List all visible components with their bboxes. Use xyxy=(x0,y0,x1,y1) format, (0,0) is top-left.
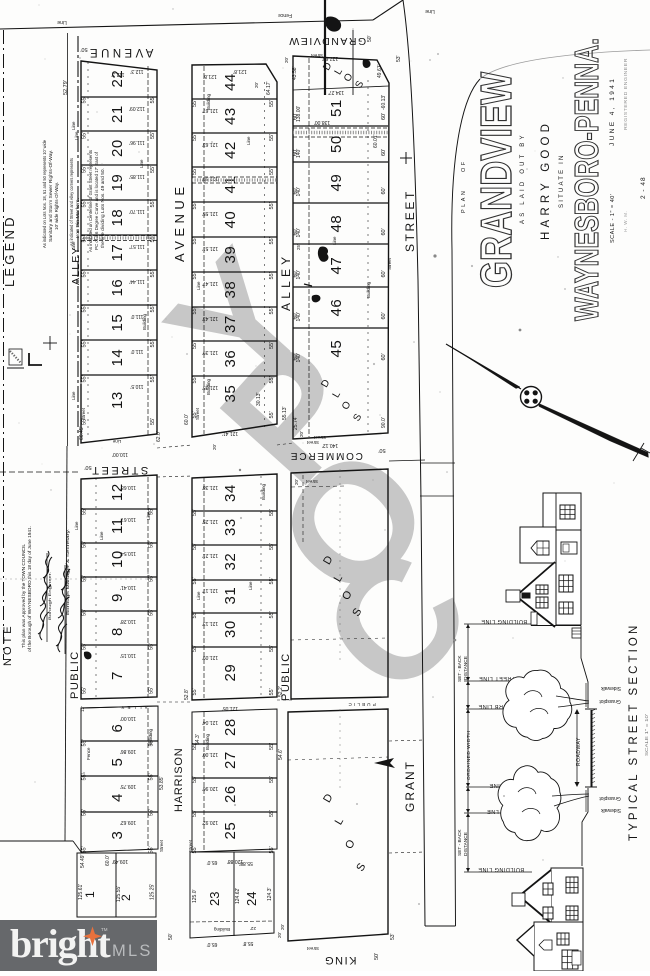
svg-text:55': 55' xyxy=(150,235,156,242)
svg-text:55': 55' xyxy=(82,739,88,746)
svg-text:49.61': 49.61' xyxy=(377,64,383,78)
svg-text:55': 55' xyxy=(269,168,275,175)
svg-text:55': 55' xyxy=(192,342,198,349)
svg-text:PLAN: PLAN xyxy=(461,189,467,213)
svg-text:121.55': 121.55' xyxy=(202,210,218,216)
svg-text:55.13': 55.13' xyxy=(282,406,288,420)
svg-text:60': 60' xyxy=(293,270,299,277)
svg-text:49: 49 xyxy=(328,174,345,192)
svg-text:STREET: STREET xyxy=(403,189,417,252)
svg-text:65.0': 65.0' xyxy=(207,941,218,947)
svg-text:10' wide Rights-Of-Way.: 10' wide Rights-Of-Way. xyxy=(54,182,59,230)
svg-text:Street: Street xyxy=(81,407,86,420)
svg-text:55': 55' xyxy=(192,168,198,175)
svg-text:60': 60' xyxy=(293,228,299,235)
svg-text:55': 55' xyxy=(149,575,155,582)
svg-text:60': 60' xyxy=(293,353,299,360)
svg-text:Fence: Fence xyxy=(86,747,91,760)
svg-text:121.51': 121.51' xyxy=(202,245,218,251)
svg-text:31: 31 xyxy=(222,587,239,605)
svg-text:36: 36 xyxy=(222,350,239,368)
svg-text:55': 55' xyxy=(192,611,198,618)
svg-text:43: 43 xyxy=(222,107,239,125)
svg-text:60': 60' xyxy=(293,312,299,319)
svg-text:54.49': 54.49' xyxy=(80,854,86,868)
svg-text:28: 28 xyxy=(222,718,239,736)
svg-text:125.25': 125.25' xyxy=(150,884,156,900)
svg-text:55.88': 55.88' xyxy=(239,860,253,866)
svg-text:50': 50' xyxy=(80,46,87,52)
svg-text:121.09': 121.09' xyxy=(202,654,218,660)
svg-text:DISTANCE: DISTANCE xyxy=(463,832,469,856)
svg-text:55': 55' xyxy=(82,773,88,780)
svg-text:55': 55' xyxy=(192,376,198,383)
svg-text:20: 20 xyxy=(109,139,126,157)
svg-text:27: 27 xyxy=(222,751,239,769)
svg-text:121.47': 121.47' xyxy=(202,280,218,286)
svg-text:55': 55' xyxy=(150,132,156,139)
svg-text:Line: Line xyxy=(139,159,144,168)
svg-text:Borough Manager & Secret: Borough Manager & Secretary. xyxy=(66,529,70,615)
svg-text:Street: Street xyxy=(188,839,193,852)
svg-text:55': 55' xyxy=(150,96,156,103)
svg-text:53': 53' xyxy=(396,55,402,62)
svg-text:Building: Building xyxy=(148,728,153,745)
svg-text:124.3': 124.3' xyxy=(267,887,273,901)
svg-text:Line: Line xyxy=(332,236,337,245)
svg-text:60': 60' xyxy=(293,187,299,194)
svg-text:55': 55' xyxy=(149,609,155,616)
svg-text:Street: Street xyxy=(195,407,200,420)
svg-text:1: 1 xyxy=(83,891,97,898)
svg-text:38: 38 xyxy=(222,281,239,299)
svg-text:110.68': 110.68' xyxy=(120,484,136,490)
svg-text:GRANT: GRANT xyxy=(403,760,417,812)
svg-text:124.62': 124.62' xyxy=(235,888,241,904)
svg-text:112.3': 112.3' xyxy=(130,68,143,74)
svg-text:Building: Building xyxy=(205,733,210,750)
svg-text:55': 55' xyxy=(82,375,88,382)
svg-text:55': 55' xyxy=(150,270,156,277)
svg-text:Street: Street xyxy=(306,946,319,951)
svg-text:110.41': 110.41' xyxy=(120,584,136,590)
svg-text:138.00': 138.00' xyxy=(314,119,330,125)
svg-text:55': 55' xyxy=(192,272,198,279)
svg-text:55': 55' xyxy=(269,611,275,618)
svg-text:111.70': 111.70' xyxy=(129,208,145,214)
svg-text:42: 42 xyxy=(222,141,239,159)
svg-text:44: 44 xyxy=(222,73,239,91)
svg-text:55': 55' xyxy=(269,307,275,314)
svg-text:39: 39 xyxy=(222,246,239,264)
svg-text:Sidewalk: Sidewalk xyxy=(600,685,621,691)
svg-text:48: 48 xyxy=(328,215,345,233)
svg-text:Building: Building xyxy=(366,281,371,298)
svg-text:55': 55' xyxy=(82,687,88,694)
svg-text:15: 15 xyxy=(109,314,126,332)
svg-text:55': 55' xyxy=(82,96,88,103)
svg-text:55': 55' xyxy=(149,846,155,853)
svg-text:64.17': 64.17' xyxy=(266,81,272,95)
svg-text:53': 53' xyxy=(390,933,396,940)
svg-text:55': 55' xyxy=(269,577,275,584)
svg-text:51: 51 xyxy=(328,99,345,117)
svg-text:Line: Line xyxy=(425,8,435,14)
svg-text:50': 50' xyxy=(374,953,380,960)
svg-text:24: 24 xyxy=(244,892,259,906)
svg-text:HARRISON: HARRISON xyxy=(173,748,185,812)
svg-text:50': 50' xyxy=(168,933,174,940)
svg-text:55': 55' xyxy=(269,202,275,209)
svg-text:121.25': 121.25' xyxy=(202,518,218,524)
svg-text:55': 55' xyxy=(192,100,198,107)
svg-text:109.86': 109.86' xyxy=(120,748,136,754)
svg-text:55': 55' xyxy=(269,543,275,550)
svg-text:125.55': 125.55' xyxy=(116,886,122,902)
svg-text:40: 40 xyxy=(222,211,239,229)
svg-text:As indicated on Centerline: As indicated on Centerline of Grant Stre… xyxy=(88,150,93,252)
svg-text:55': 55' xyxy=(192,645,198,652)
svg-text:PUBLIC: PUBLIC xyxy=(280,652,292,701)
svg-text:17: 17 xyxy=(109,244,126,262)
svg-text:55': 55' xyxy=(82,508,88,515)
svg-text:55': 55' xyxy=(269,688,275,695)
svg-text:19: 19 xyxy=(109,174,126,192)
svg-text:REGISTERED ENGINEER: REGISTERED ENGINEER xyxy=(623,58,628,130)
svg-text:TYPICAL STREET SECTION: TYPICAL STREET SECTION xyxy=(628,623,640,841)
svg-text:bright: bright xyxy=(10,921,111,966)
svg-text:WAYNESBORO-PENNA.: WAYNESBORO-PENNA. xyxy=(568,38,605,321)
svg-text:55': 55' xyxy=(82,200,88,207)
svg-text:Line: Line xyxy=(196,281,201,290)
svg-text:127.63': 127.63' xyxy=(322,55,338,61)
svg-text:55': 55' xyxy=(192,543,198,550)
svg-text:125.61': 125.61' xyxy=(78,884,84,900)
svg-text:55': 55' xyxy=(192,776,198,783)
svg-text:110.54': 110.54' xyxy=(120,550,136,556)
svg-text:ALLEY: ALLEY xyxy=(279,253,293,311)
svg-text:PUBLIC: PUBLIC xyxy=(69,650,81,699)
svg-text:109.49': 109.49' xyxy=(112,858,128,864)
svg-text:111.85': 111.85' xyxy=(129,173,145,179)
svg-text:Building: Building xyxy=(142,313,147,330)
svg-text:60': 60' xyxy=(381,187,387,194)
svg-text:110.28': 110.28' xyxy=(120,618,136,624)
svg-text:50: 50 xyxy=(328,135,345,153)
svg-text:55': 55' xyxy=(82,270,88,277)
svg-text:7: 7 xyxy=(109,671,126,680)
svg-text:Street: Street xyxy=(305,479,318,484)
svg-text:of the Borough of WAYNESBO: of the Borough of WAYNESBORO this 18 day… xyxy=(27,526,32,652)
svg-text:111.44': 111.44' xyxy=(129,278,145,284)
svg-text:47: 47 xyxy=(328,257,345,275)
svg-text:20': 20' xyxy=(254,82,259,88)
svg-text:55': 55' xyxy=(269,376,275,383)
svg-text:55': 55' xyxy=(82,166,88,173)
svg-text:Iron Pin Markers.: Iron Pin Markers. xyxy=(75,198,80,238)
svg-text:121.8': 121.8' xyxy=(233,68,247,74)
svg-text:SET - BACK: SET - BACK xyxy=(457,655,463,682)
svg-text:SET - BACK: SET - BACK xyxy=(457,829,463,856)
svg-text:121.21': 121.21' xyxy=(202,552,218,558)
svg-text:55': 55' xyxy=(269,237,275,244)
svg-text:55': 55' xyxy=(269,810,275,817)
svg-text:55': 55' xyxy=(150,166,156,173)
svg-text:AS LAID OUT BY: AS LAID OUT BY xyxy=(520,132,526,224)
svg-text:50': 50' xyxy=(378,447,385,453)
svg-text:20': 20' xyxy=(299,431,304,437)
svg-text:121.8': 121.8' xyxy=(203,73,217,79)
svg-text:Street: Street xyxy=(387,257,392,270)
svg-text:110.00': 110.00' xyxy=(120,715,136,721)
svg-text:55': 55' xyxy=(82,305,88,312)
svg-text:Line: Line xyxy=(248,581,253,590)
svg-text:121.41': 121.41' xyxy=(222,430,238,436)
svg-text:PUBLIC: PUBLIC xyxy=(346,702,375,707)
svg-text:TM: TM xyxy=(101,927,108,932)
svg-text:60': 60' xyxy=(381,270,387,277)
svg-text:55': 55' xyxy=(269,134,275,141)
svg-text:55': 55' xyxy=(82,541,88,548)
svg-text:60': 60' xyxy=(381,113,387,120)
svg-text:ALLEY: ALLEY xyxy=(70,246,82,285)
svg-text:This plan was Approved by: This plan was Approved by the TOWN COUNC… xyxy=(21,543,26,648)
svg-text:55': 55' xyxy=(269,645,275,652)
svg-text:52.79': 52.79' xyxy=(63,80,69,95)
svg-text:60': 60' xyxy=(381,228,387,235)
svg-text:20': 20' xyxy=(280,924,285,930)
svg-text:KING: KING xyxy=(324,954,357,966)
svg-text:LEGEND: LEGEND xyxy=(2,214,17,287)
svg-text:16: 16 xyxy=(109,279,126,297)
svg-text:26: 26 xyxy=(222,785,239,803)
svg-text:Line: Line xyxy=(74,131,79,140)
svg-text:121.13': 121.13' xyxy=(202,620,218,626)
svg-text:Building: Building xyxy=(213,927,230,932)
svg-text:Building: Building xyxy=(206,378,211,395)
svg-text:AVENUE: AVENUE xyxy=(172,183,187,263)
svg-text:111.96': 111.96' xyxy=(129,139,145,145)
svg-text:55': 55' xyxy=(150,340,156,347)
svg-text:110.00': 110.00' xyxy=(112,451,128,457)
svg-text:20': 20' xyxy=(212,444,217,450)
svg-text:8: 8 xyxy=(109,627,126,636)
svg-text:55': 55' xyxy=(269,272,275,279)
svg-text:55': 55' xyxy=(192,810,198,817)
svg-text:GRANDVIEW: GRANDVIEW xyxy=(472,72,521,288)
svg-text:55': 55' xyxy=(149,541,155,548)
svg-text:110.15': 110.15' xyxy=(120,652,136,658)
svg-text:60': 60' xyxy=(293,149,299,156)
svg-text:111.0': 111.0' xyxy=(131,348,144,354)
svg-text:20': 20' xyxy=(294,479,299,485)
svg-text:55': 55' xyxy=(82,643,88,650)
svg-text:As indicated of Street and: As indicated of Street and Alley corners… xyxy=(69,158,74,246)
svg-text:Line: Line xyxy=(57,19,67,25)
svg-text:-60.13': -60.13' xyxy=(381,95,387,110)
svg-text:32: 32 xyxy=(222,553,239,571)
svg-text:55': 55' xyxy=(149,773,155,780)
svg-text:Sanitary and Storm Sewer R: Sanitary and Storm Sewer Rights-Of-Way. xyxy=(48,150,53,242)
svg-text:112.09': 112.09' xyxy=(129,105,145,111)
svg-text:121.38': 121.38' xyxy=(202,484,218,490)
svg-text:55': 55' xyxy=(269,100,275,107)
svg-text:55': 55' xyxy=(82,132,88,139)
svg-text:53.85': 53.85' xyxy=(159,776,165,790)
svg-text:Line: Line xyxy=(71,121,76,130)
svg-text:55': 55' xyxy=(192,509,198,516)
svg-text:Line: Line xyxy=(146,511,151,520)
svg-text:55': 55' xyxy=(82,846,88,853)
svg-text:60.0': 60.0' xyxy=(184,414,190,425)
svg-text:13: 13 xyxy=(109,391,126,409)
svg-text:55': 55' xyxy=(82,609,88,616)
svg-text:121.39': 121.39' xyxy=(202,349,218,355)
svg-text:55': 55' xyxy=(192,134,198,141)
svg-text:PC of a 6 Degree Curve a: PC of a 6 Degree Curve and is located 17… xyxy=(94,151,99,250)
svg-text:112.3': 112.3' xyxy=(111,71,124,77)
svg-text:22': 22' xyxy=(250,926,256,931)
svg-text:Sidewalk: Sidewalk xyxy=(600,807,621,813)
svg-text:110.67': 110.67' xyxy=(120,516,136,522)
svg-text:COMMERCE: COMMERCE xyxy=(289,450,363,461)
svg-text:Line: Line xyxy=(71,391,76,400)
svg-text:Line: Line xyxy=(196,591,201,600)
svg-text:109.75': 109.75' xyxy=(120,783,136,789)
svg-text:14: 14 xyxy=(109,349,126,367)
svg-text:ROADWAY: ROADWAY xyxy=(576,737,582,766)
svg-text:Building: Building xyxy=(261,483,266,500)
svg-text:121.63': 121.63' xyxy=(202,141,218,147)
svg-text:54.3': 54.3' xyxy=(195,734,201,745)
svg-text:SITUATE IN: SITUATE IN xyxy=(559,153,565,208)
svg-text:NOTE: NOTE xyxy=(2,623,14,666)
svg-text:55': 55' xyxy=(269,509,275,516)
svg-text:Line: Line xyxy=(112,439,121,444)
svg-text:18: 18 xyxy=(109,209,126,227)
svg-text:55': 55' xyxy=(192,577,198,584)
svg-text:55': 55' xyxy=(149,687,155,694)
svg-text:SCALE - 1" = 40': SCALE - 1" = 40' xyxy=(610,194,616,243)
svg-text:Grassplot: Grassplot xyxy=(599,795,621,801)
svg-text:4: 4 xyxy=(109,793,126,802)
svg-text:55': 55' xyxy=(192,202,198,209)
svg-text:A L L E Y: A L L E Y xyxy=(120,705,147,710)
svg-text:55': 55' xyxy=(269,342,275,349)
svg-text:54.6': 54.6' xyxy=(278,749,284,760)
svg-text:Line: Line xyxy=(99,531,104,540)
svg-text:9: 9 xyxy=(109,593,126,602)
svg-text:OF: OF xyxy=(461,159,467,172)
svg-text:Line: Line xyxy=(74,521,79,530)
svg-text:55': 55' xyxy=(149,643,155,650)
svg-text:AVENUE: AVENUE xyxy=(87,46,154,58)
svg-text:109.62': 109.62' xyxy=(120,819,136,825)
svg-text:46: 46 xyxy=(328,299,345,317)
svg-text:90.0': 90.0' xyxy=(381,417,387,428)
svg-text:Grassplot: Grassplot xyxy=(599,698,621,704)
svg-text:65.0': 65.0' xyxy=(207,859,218,865)
svg-text:25: 25 xyxy=(222,822,239,840)
svg-text:55': 55' xyxy=(192,307,198,314)
svg-text:66.45': 66.45' xyxy=(79,426,85,440)
svg-text:SCALE 1" = 10': SCALE 1" = 10' xyxy=(644,714,649,756)
svg-text:23: 23 xyxy=(207,892,222,906)
svg-text:50': 50' xyxy=(84,464,91,470)
svg-text:55': 55' xyxy=(150,375,156,382)
svg-text:33: 33 xyxy=(222,518,239,536)
svg-text:60': 60' xyxy=(381,312,387,319)
svg-text:MLS: MLS xyxy=(112,942,153,960)
svg-text:111.57': 111.57' xyxy=(129,243,145,249)
svg-text:STREET: STREET xyxy=(90,464,148,476)
svg-text:62.0': 62.0' xyxy=(156,431,162,442)
svg-text:20': 20' xyxy=(284,57,289,63)
svg-text:As indicated on Lots Nos.: As indicated on Lots Nos. 18, 51 and 50 … xyxy=(42,139,47,248)
svg-text:Borough Engineer.: Borough Engineer. xyxy=(48,572,52,620)
svg-text:Street: Street xyxy=(159,839,164,852)
svg-text:BUILDING LINE: BUILDING LINE xyxy=(478,866,524,872)
svg-text:H. W. M.: H. W. M. xyxy=(623,211,628,232)
svg-text:55': 55' xyxy=(192,237,198,244)
svg-text:Line: Line xyxy=(246,136,251,145)
svg-text:HARRY GOOD: HARRY GOOD xyxy=(540,120,552,240)
svg-text:2 - 48: 2 - 48 xyxy=(640,176,647,199)
svg-text:35: 35 xyxy=(222,385,239,403)
svg-text:25.74': 25.74' xyxy=(293,416,299,430)
svg-text:60.01': 60.01' xyxy=(373,134,379,148)
svg-text:121.43': 121.43' xyxy=(202,315,218,321)
svg-text:30: 30 xyxy=(222,620,239,638)
svg-text:37: 37 xyxy=(222,315,239,333)
svg-text:Street: Street xyxy=(313,435,326,440)
svg-text:21: 21 xyxy=(109,105,126,123)
svg-text:5: 5 xyxy=(109,758,126,767)
svg-text:60.0': 60.0' xyxy=(105,855,111,866)
svg-text:45: 45 xyxy=(328,340,345,358)
svg-text:ORDAINED WIDTH: ORDAINED WIDTH xyxy=(466,731,472,780)
svg-text:GRANDVIEW: GRANDVIEW xyxy=(288,35,366,47)
svg-text:34: 34 xyxy=(222,484,239,502)
svg-text:3: 3 xyxy=(109,831,126,840)
svg-text:25': 25' xyxy=(296,244,301,250)
svg-text:55': 55' xyxy=(82,340,88,347)
svg-text:60': 60' xyxy=(381,149,387,156)
svg-text:52.8': 52.8' xyxy=(184,689,190,700)
svg-text:20': 20' xyxy=(277,932,282,938)
svg-text:55': 55' xyxy=(150,418,156,425)
svg-text:43.58': 43.58' xyxy=(292,66,298,80)
svg-text:6: 6 xyxy=(109,724,126,733)
svg-text:50': 50' xyxy=(367,35,373,42)
svg-text:125.0': 125.0' xyxy=(192,889,198,903)
svg-text:140.12': 140.12' xyxy=(322,442,338,448)
svg-text:55': 55' xyxy=(192,688,198,695)
svg-text:110.5': 110.5' xyxy=(130,383,143,389)
svg-text:55': 55' xyxy=(82,575,88,582)
svg-text:Building: Building xyxy=(206,93,211,110)
svg-text:55': 55' xyxy=(150,305,156,312)
svg-text:121.17': 121.17' xyxy=(202,587,218,593)
svg-text:DISTANCE: DISTANCE xyxy=(463,656,469,680)
svg-text:55': 55' xyxy=(269,776,275,783)
svg-text:55': 55' xyxy=(269,411,275,418)
svg-text:Fence: Fence xyxy=(278,12,292,18)
svg-text:60': 60' xyxy=(293,113,299,120)
svg-text:55': 55' xyxy=(150,200,156,207)
svg-text:60': 60' xyxy=(381,353,387,360)
svg-text:the line dividing Lots Nos: the line dividing Lots Nos. 49 and 50. xyxy=(100,168,105,248)
